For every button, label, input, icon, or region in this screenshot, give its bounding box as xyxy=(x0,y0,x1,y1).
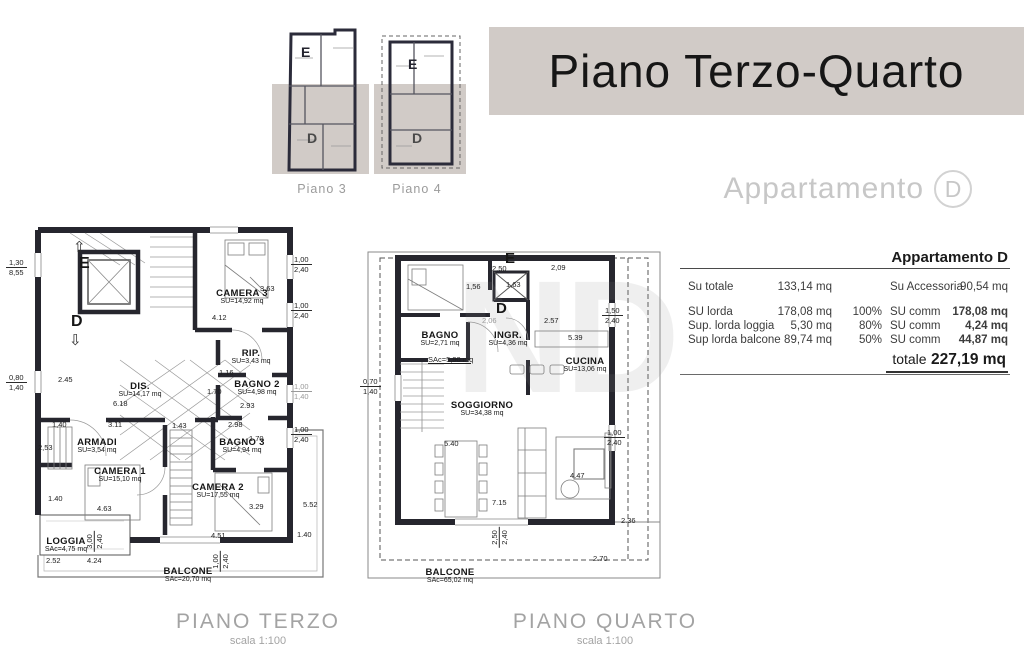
table-total: totale 227,19 mq xyxy=(680,351,1008,373)
room-balcone-terzo: BALCONESAc=20,70 mq xyxy=(163,566,212,583)
terzo-marker-d: D xyxy=(71,313,83,331)
apartment-letter-badge: D xyxy=(934,170,972,208)
room-camera1: CAMERA 1SU=15,10 mq xyxy=(94,466,146,483)
table-bottom-rule xyxy=(680,374,1010,375)
apartment-heading-label: Appartamento xyxy=(724,172,924,206)
dim-label: 1.70 xyxy=(207,388,222,396)
dim-stack: 1,002,40 xyxy=(604,428,625,447)
dim-stack: 1,002,40 xyxy=(291,255,312,274)
dim-label: 4.24 xyxy=(87,557,102,565)
dim-stack: 1,001,40 xyxy=(291,382,312,401)
dim-label: 2.57 xyxy=(544,317,559,325)
room-rip: RIP.SU=3,43 mq xyxy=(231,348,270,365)
dim-label: 1,40 xyxy=(52,421,67,429)
dim-label: 2,50 xyxy=(492,265,507,273)
dim-label: 2.70 xyxy=(593,555,608,563)
row-value-2: 44,87 mq xyxy=(914,334,1008,346)
dim-stack: 1,002,40 xyxy=(291,425,312,444)
row-value: 178,08 mq xyxy=(738,306,832,318)
total-value: 227,19 mq xyxy=(931,351,1006,368)
dim-stack: 1,002,40 xyxy=(291,301,312,320)
room-bagno: BAGNOSU=2,71 mq xyxy=(420,330,459,347)
table-row: SU lorda 178,08 mq 100% SU comm 178,08 m… xyxy=(680,306,1010,320)
dim-label: 2.98 xyxy=(228,421,243,429)
floor-plan-sheet: Piano Terzo-Quarto E D E D Piano 3 Piano… xyxy=(0,0,1024,659)
row-percent: 80% xyxy=(840,320,882,332)
terzo-arrow-down-icon: ⇩ xyxy=(69,331,82,349)
row-value-2: 178,08 mq xyxy=(914,306,1008,318)
keyplan4-unit-d-label: D xyxy=(412,130,422,146)
dim-label: 1.40 xyxy=(48,495,63,503)
room-camera2: CAMERA 2SU=17,55 mq xyxy=(192,482,244,499)
dim-label: 5.40 xyxy=(444,440,459,448)
keyplan3-caption: Piano 3 xyxy=(272,182,372,196)
dim-label: 3.29 xyxy=(249,503,264,511)
caption-scale: scala 1:100 xyxy=(495,635,715,647)
dim-stack: 0,701,40 xyxy=(360,377,381,396)
row-label: SU lorda xyxy=(688,306,733,318)
dim-label: 2.36 xyxy=(621,517,636,525)
dim-label: 2,09 xyxy=(551,264,566,272)
keyplan4-unit-e-label: E xyxy=(408,56,417,72)
dim-label: 2,06 xyxy=(482,317,497,325)
caption-title: PIANO TERZO xyxy=(148,610,368,634)
table-title-rule xyxy=(680,268,1010,269)
dim-label: 4.51 xyxy=(211,532,226,540)
stair-area-label: SAc=5,90 mq xyxy=(428,356,473,364)
room-loggia: LOGGIASAc=4,75 mq xyxy=(45,536,87,553)
row-percent: 100% xyxy=(840,306,882,318)
row-percent: 50% xyxy=(840,334,882,346)
dim-label: 1.70 xyxy=(249,435,264,443)
dim-label: 1.43 xyxy=(172,422,187,430)
dim-label: 6.18 xyxy=(113,400,128,408)
row-value: 89,74 mq xyxy=(738,334,832,346)
piano-terzo-caption: PIANO TERZO scala 1:100 xyxy=(148,610,368,647)
table-row: Su totale 133,14 mq Su Accessoria 90,54 … xyxy=(680,281,1010,295)
caption-title: PIANO QUARTO xyxy=(495,610,715,634)
dim-label: 2.52 xyxy=(46,557,61,565)
dim-label: 1.40 xyxy=(297,531,312,539)
room-dis: DIS.SU=14,17 mq xyxy=(119,381,162,398)
table-row: Sup. lorda loggia 5,30 mq 80% SU comm 4,… xyxy=(680,320,1010,334)
quarto-marker-d: D xyxy=(496,300,507,317)
piano-quarto-plan xyxy=(360,245,670,590)
row-value-2: 4,24 mq xyxy=(914,320,1008,332)
row-label: Su totale xyxy=(688,281,733,293)
total-label: totale xyxy=(892,351,926,367)
dim-label: 1,56 xyxy=(466,283,481,291)
keyplan-piano3-drawing xyxy=(283,28,365,176)
row-value: 5,30 mq xyxy=(738,320,832,332)
dim-label: 3.63 xyxy=(260,285,275,293)
title-banner: Piano Terzo-Quarto xyxy=(489,27,1024,115)
table-title: Appartamento D xyxy=(680,249,1008,266)
dim-label: 1.16 xyxy=(219,369,234,377)
dim-label: 1,63 xyxy=(506,281,521,289)
dim-stack: 0,801,40 xyxy=(6,373,27,392)
room-ingr: INGR.SU=4,36 mq xyxy=(488,330,527,347)
terzo-arrow-up-icon: ⇧ xyxy=(73,238,86,256)
terzo-marker-e: E xyxy=(79,255,90,273)
keyplan-piano4-drawing xyxy=(380,30,464,174)
dim-label: 5.39 xyxy=(568,334,583,342)
dim-label: 7.15 xyxy=(492,499,507,507)
keyplan3-unit-d-label: D xyxy=(307,130,317,146)
room-balcone-quarto: BALCONESAc=65,02 mq xyxy=(425,567,474,584)
row-value: 133,14 mq xyxy=(738,281,832,293)
dim-label: 2,53 xyxy=(38,444,53,452)
room-cucina: CUCINASU=13,06 mq xyxy=(564,356,607,373)
dim-label: 2.93 xyxy=(240,402,255,410)
dim-stack: 2,502,40 xyxy=(490,527,509,548)
row-value-2: 90,54 mq xyxy=(914,281,1008,293)
dim-stack: 1,502,40 xyxy=(602,306,623,325)
apartment-heading: Appartamento D xyxy=(690,170,972,208)
dim-label: 4.63 xyxy=(97,505,112,513)
room-soggiorno: SOGGIORNOSU=34,38 mq xyxy=(451,400,513,417)
dim-label: 3.11 xyxy=(108,421,122,429)
dim-label: 5.52 xyxy=(303,501,318,509)
dim-stack: 1,308,55 xyxy=(6,258,27,277)
dim-stack: 1,002,40 xyxy=(211,551,230,572)
keyplan4-caption: Piano 4 xyxy=(367,182,467,196)
dim-stack: 3,002,40 xyxy=(85,531,104,552)
table-row: Sup lorda balcone 89,74 mq 50% SU comm 4… xyxy=(680,334,1010,348)
room-armadi: ARMADISU=3,54 mq xyxy=(77,437,117,454)
keyplan3-unit-e-label: E xyxy=(301,44,310,60)
room-bagno2: BAGNO 2SU=4,98 mq xyxy=(234,379,279,396)
dim-label: 4.47 xyxy=(570,472,585,480)
dim-label: 4.12 xyxy=(212,314,227,322)
sheet-title: Piano Terzo-Quarto xyxy=(548,44,964,98)
dim-label: 2.45 xyxy=(58,376,73,384)
piano-quarto-caption: PIANO QUARTO scala 1:100 xyxy=(495,610,715,647)
caption-scale: scala 1:100 xyxy=(148,635,368,647)
